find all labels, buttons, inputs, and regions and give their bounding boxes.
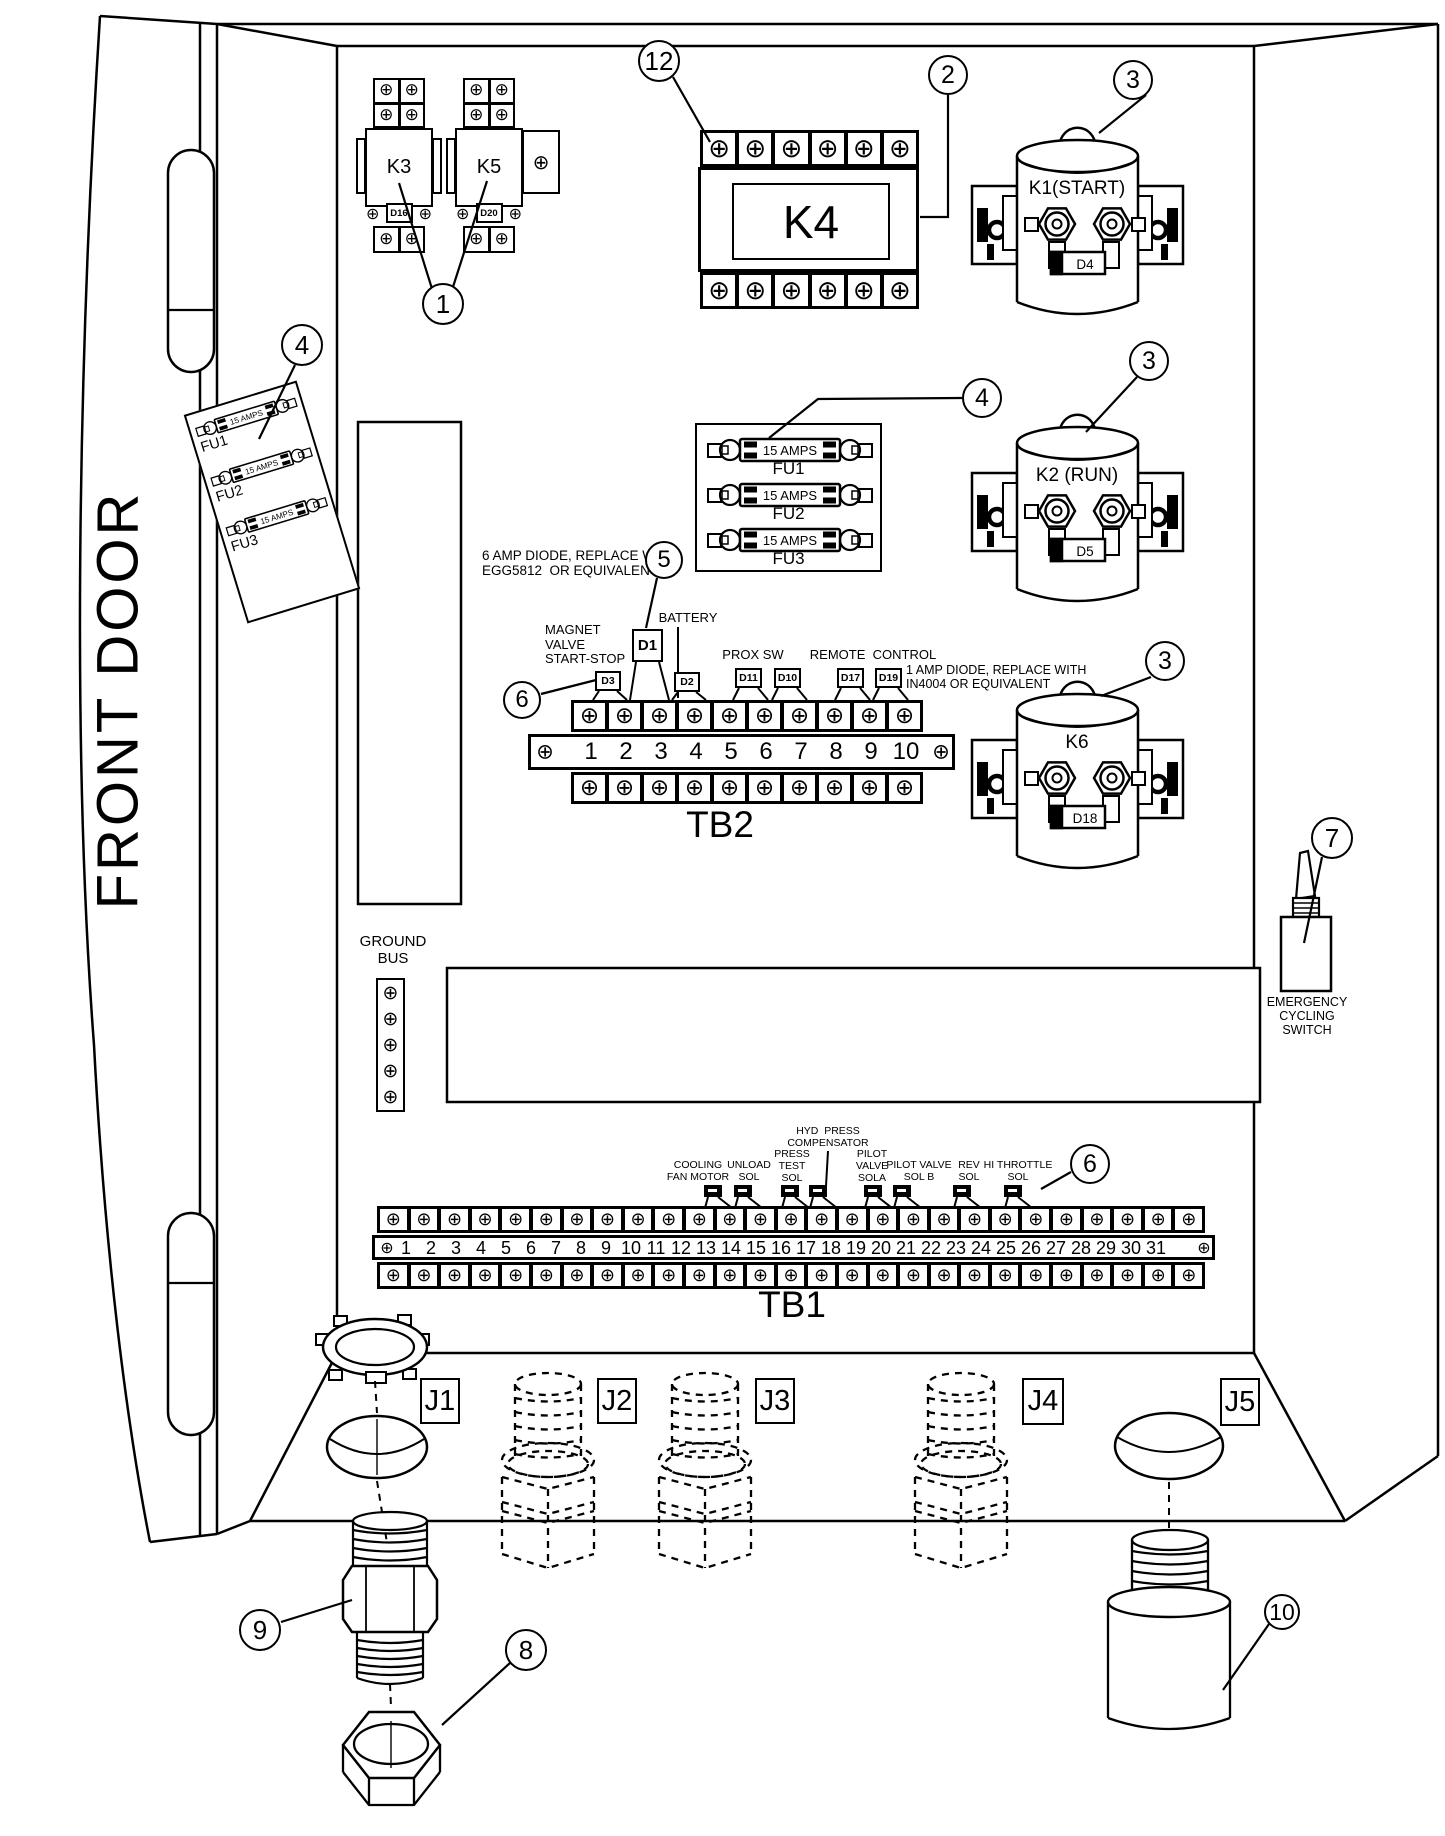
label-rev-sol: REV SOL: [958, 1160, 980, 1184]
j2-text: J2: [602, 1385, 633, 1418]
callout-5-d1: 5: [645, 541, 683, 579]
labels-layer: FRONT DOOR TB1 TB2 J1 J2 J3 J4 J5 6 AMP …: [0, 0, 1445, 1836]
callout-3-k1: 3: [1113, 60, 1153, 100]
label-remote-control: REMOTE CONTROL: [810, 648, 936, 663]
j4-text: J4: [1028, 1385, 1059, 1418]
callout-3-k2: 3: [1129, 341, 1169, 381]
callout-1-relays: 1: [422, 283, 464, 325]
label-press-test: PRESS TEST SOL: [774, 1149, 810, 1184]
label-pilot-sola: PILOT VALVE SOLA: [856, 1149, 888, 1184]
label-pilot-solb: PILOT VALVE SOL B: [886, 1160, 951, 1184]
callout-2-k4: 2: [928, 55, 968, 95]
callout-10-barrel: 10: [1264, 1594, 1300, 1630]
diagram-page: ⊕⊕⊕⊕K3⊕D16⊕⊕⊕⊕⊕⊕⊕K5⊕⊕D20⊕⊕⊕⊕⊕⊕⊕⊕⊕K4⊕⊕⊕⊕⊕…: [0, 0, 1445, 1836]
tb2-label: TB2: [686, 804, 754, 846]
label-prox-sw: PROX SW: [722, 648, 783, 663]
callout-6-tb2: 6: [503, 681, 541, 719]
connector-label-j1: J1: [420, 1378, 460, 1424]
callout-8-hex-nut: 8: [505, 1629, 547, 1671]
j5-text: J5: [1225, 1386, 1256, 1419]
front-door-label: FRONT DOOR: [85, 491, 152, 910]
callout-3-k6: 3: [1145, 641, 1185, 681]
note-1amp-diode: 1 AMP DIODE, REPLACE WITH IN4004 OR EQUI…: [906, 663, 1086, 691]
label-ground-bus: GROUND BUS: [360, 934, 427, 968]
connector-label-j3: J3: [755, 1378, 795, 1424]
callout-9-fitting: 9: [239, 1609, 281, 1651]
label-battery: BATTERY: [659, 611, 718, 626]
callout-6-tb1: 6: [1070, 1144, 1110, 1184]
label-emergency: EMERGENCY CYCLING SWITCH: [1267, 995, 1348, 1037]
label-magnet-valve: MAGNET VALVE START-STOP: [545, 623, 625, 667]
j3-text: J3: [760, 1385, 791, 1418]
callout-4-door-fuses: 4: [281, 324, 323, 366]
connector-label-j4: J4: [1022, 1378, 1064, 1425]
label-hi-throttle: HI THROTTLE SOL: [984, 1160, 1053, 1184]
callout-12-k4-terminals: 12: [638, 40, 680, 82]
connector-label-j2: J2: [597, 1378, 637, 1424]
label-hyd-press: HYD PRESS COMPENSATOR: [787, 1126, 868, 1150]
callout-7-emergency-switch: 7: [1311, 817, 1353, 859]
callout-4-fuse-block: 4: [962, 378, 1002, 418]
label-cooling-fan: COOLING FAN MOTOR: [667, 1160, 729, 1184]
label-unload-sol: UNLOAD SOL: [727, 1160, 771, 1184]
j1-text: J1: [425, 1385, 456, 1418]
connector-label-j5: J5: [1220, 1378, 1260, 1426]
tb1-label: TB1: [758, 1284, 826, 1326]
